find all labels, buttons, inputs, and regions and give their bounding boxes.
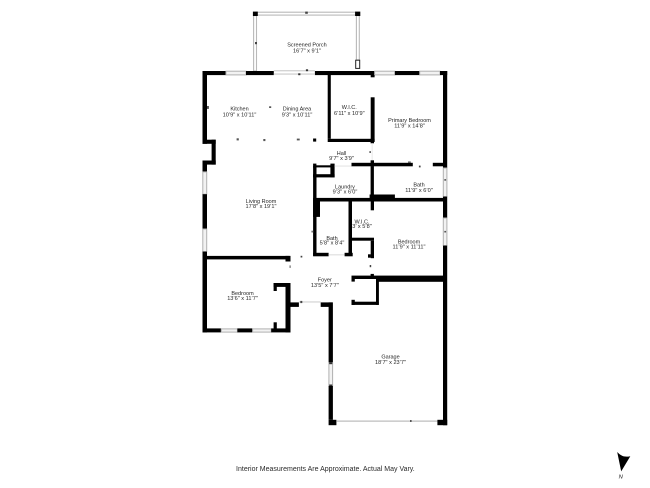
svg-text:3’ x 5’8": 3’ x 5’8" [352,224,372,230]
svg-text:5’8" x 8’4": 5’8" x 8’4" [320,240,345,246]
svg-text:9’3" x 10’11": 9’3" x 10’11" [282,112,313,118]
svg-text:9’3" x 6’0": 9’3" x 6’0" [333,189,358,195]
svg-text:W.I.C.: W.I.C. [342,105,357,111]
svg-text:13’5" x 7’7": 13’5" x 7’7" [311,283,339,289]
svg-text:10’9" x 10’11": 10’9" x 10’11" [223,112,257,118]
svg-text:6’11" x 10’9": 6’11" x 10’9" [334,111,365,117]
svg-text:13’6" x 11’7": 13’6" x 11’7" [227,296,258,302]
svg-text:18’7" x 23’7": 18’7" x 23’7" [375,360,406,366]
svg-text:16’7" x 9’1": 16’7" x 9’1" [293,48,321,54]
svg-text:11’9" x 14’8": 11’9" x 14’8" [394,123,425,129]
svg-text:Interior Measurements Are Appr: Interior Measurements Are Approximate. A… [236,466,415,473]
svg-text:9’7" x 3’9": 9’7" x 3’9" [329,156,354,162]
svg-text:17’8" x 19’1": 17’8" x 19’1" [245,204,276,210]
svg-text:11’9" x 11’11": 11’9" x 11’11" [393,244,426,250]
svg-text:11’9" x 6’0": 11’9" x 6’0" [405,188,433,194]
